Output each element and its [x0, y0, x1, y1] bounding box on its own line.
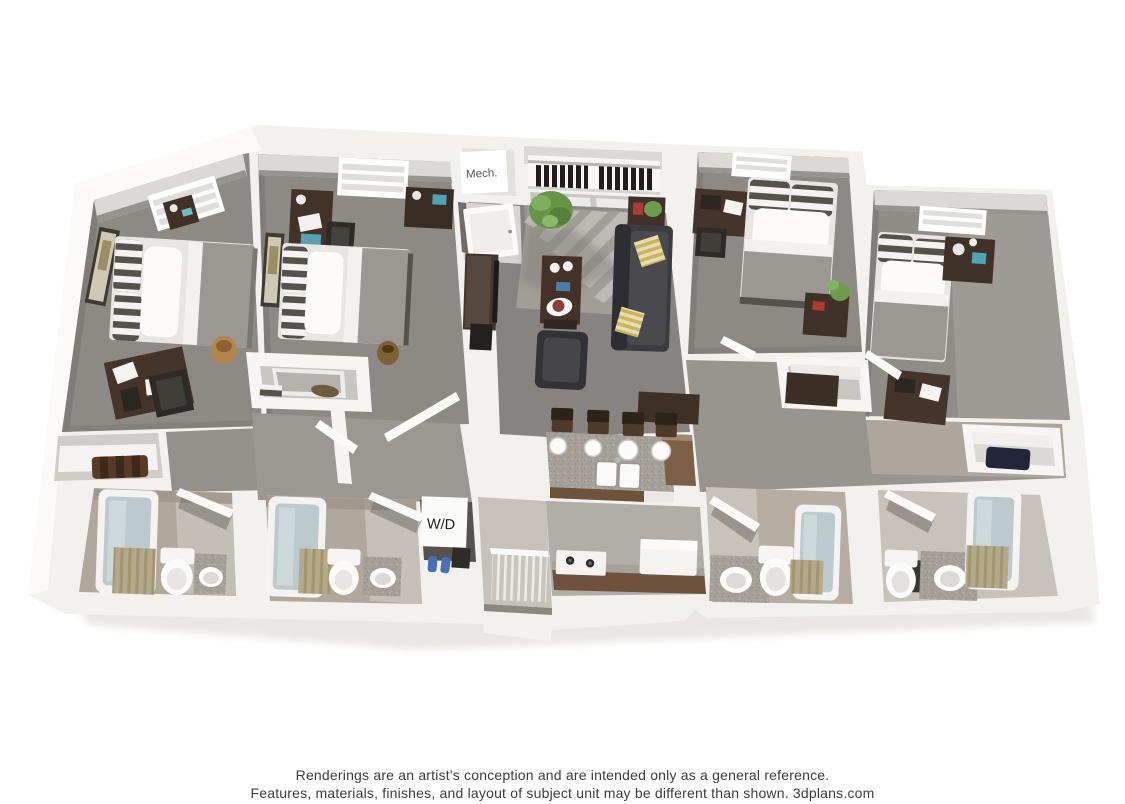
- svg-text:W/D: W/D: [427, 516, 456, 533]
- svg-text:Mech.: Mech.: [466, 167, 498, 181]
